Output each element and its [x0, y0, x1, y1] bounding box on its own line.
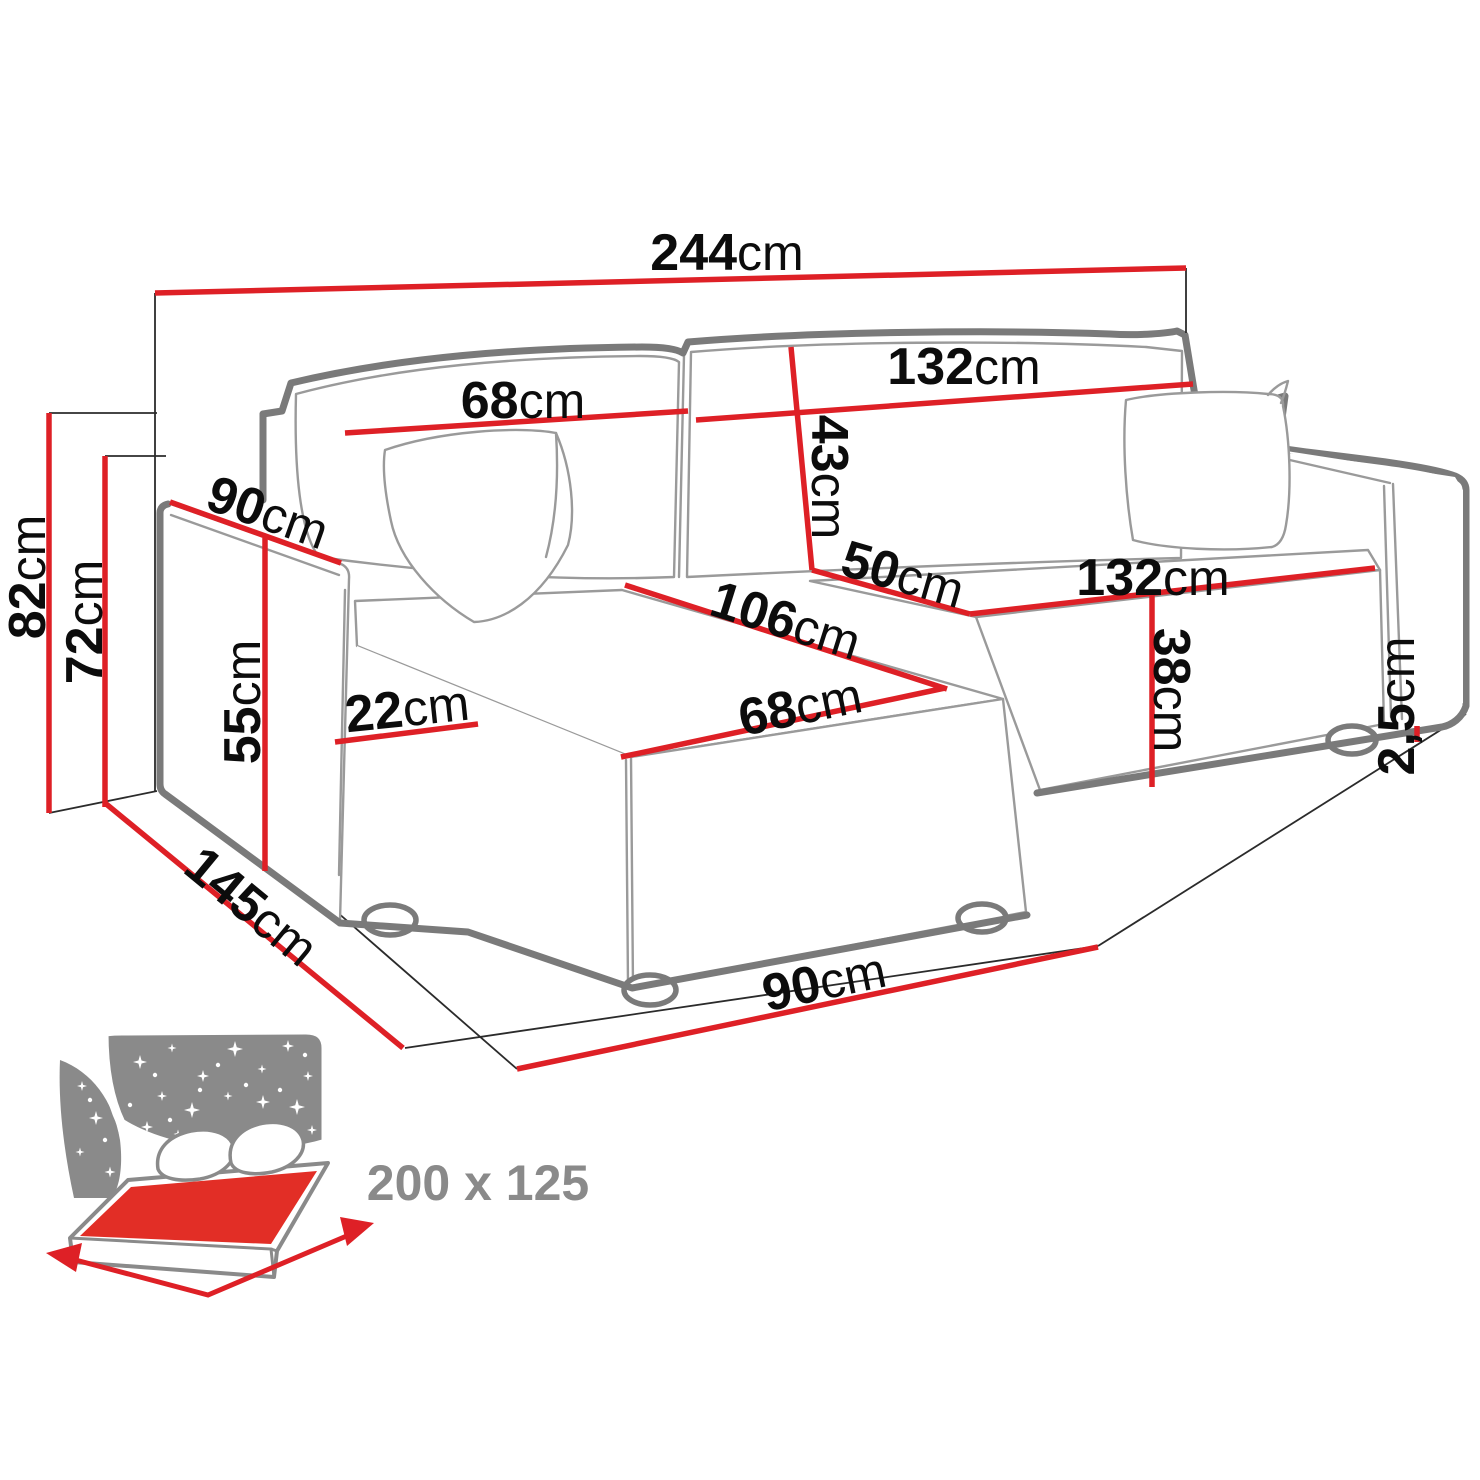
- dim-label-132-seat: 132cm: [1076, 549, 1229, 607]
- dim-label-72: 72cm: [56, 560, 114, 685]
- dim-label-38: 38cm: [1142, 628, 1200, 753]
- dim-label-55: 55cm: [214, 640, 272, 765]
- dim-label-68-top: 68cm: [461, 372, 586, 430]
- dim-label-43: 43cm: [800, 415, 858, 540]
- dim-label-132-top: 132cm: [887, 338, 1040, 396]
- dim-label-2-5: 2,5cm: [1368, 637, 1426, 776]
- corner-sofa-dimension-drawing: 244cm 132cm 68cm 43cm 90cm 50cm 132cm 10…: [0, 0, 1480, 1480]
- dimension-diagram: 244cm 132cm 68cm 43cm 90cm 50cm 132cm 10…: [0, 0, 1480, 1480]
- dim-label-244: 244cm: [650, 224, 803, 282]
- throw-pillow-right: [1124, 392, 1289, 549]
- sleeper-size-label: 200 x 125: [367, 1155, 589, 1211]
- dim-label-82: 82cm: [0, 515, 57, 640]
